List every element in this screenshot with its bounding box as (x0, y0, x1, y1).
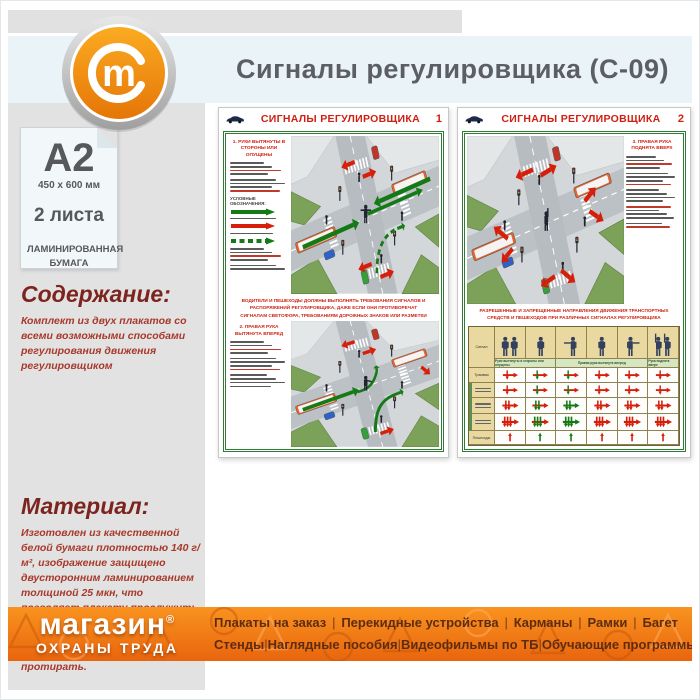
controller-figure (495, 327, 526, 359)
registered-mark: ® (166, 614, 175, 626)
signal-direction-cell (556, 368, 587, 383)
micro-text (626, 156, 678, 228)
signal-group-label: Руки вытянуты в стороны или опущены (495, 359, 556, 368)
signal-direction-cell (495, 414, 526, 431)
poster2-number: 2 (678, 113, 684, 125)
intersection-illustration-2 (291, 321, 439, 447)
footer-menu-item[interactable]: Обучающие программы (542, 637, 692, 652)
menu-separator: | (633, 615, 636, 630)
intersection-illustration-1 (291, 136, 439, 294)
footer-menu-item[interactable]: Наглядные пособия (268, 637, 398, 652)
footer-menu-item[interactable]: Рамки (588, 615, 628, 630)
signal-direction-cell (618, 398, 649, 414)
poster2-text-column: 3. ПРАВАЯ РУКА ПОДНЯТА ВВЕРХ (624, 136, 681, 304)
signal-direction-cell (495, 383, 526, 398)
controller-figure (587, 327, 618, 359)
signal-direction-cell (648, 414, 679, 431)
content-block: Содержание: Комплект из двух плакатов со… (21, 281, 201, 374)
footer-menu: Плакаты на заказ|Перекидные устройства|К… (214, 615, 678, 652)
controller-figure (556, 327, 587, 359)
page-title: Сигналы регулировщика (С-09) (236, 36, 669, 103)
signal-direction-cell (618, 431, 649, 445)
signal-direction-cell (618, 414, 649, 431)
menu-separator: | (504, 615, 507, 630)
footer-menu-row2: Стенды|Наглядные пособия|Видеофильмы по … (214, 637, 678, 652)
signal-direction-cell (526, 368, 557, 383)
signal-direction-cell (495, 368, 526, 383)
signal-direction-cell (495, 431, 526, 445)
intersection-illustration-3 (467, 136, 624, 304)
content-text: Комплект из двух плакатов со всеми возмо… (21, 314, 201, 374)
footer-brand-logo[interactable]: магазин® ОХРАНЫ ТРУДА (36, 610, 179, 655)
poster1-text-column: 1. РУКИ ВЫТЯНУТЫ В СТОРОНЫ ИЛИ ОПУЩЕНЫ У… (228, 136, 291, 294)
brand-subtitle: ОХРАНЫ ТРУДА (36, 641, 179, 655)
poster1-warning-text: ВОДИТЕЛИ И ПЕШЕХОДЫ ДОЛЖНЫ ВЫПОЛНЯТЬ ТРЕ… (228, 294, 439, 322)
legend-heading: УСЛОВНЫЕ ОБОЗНАЧЕНИЯ: (230, 196, 288, 206)
sheets-label: 2 листа (21, 205, 117, 227)
signal-direction-cell (618, 383, 649, 398)
table-row-label (469, 383, 495, 398)
poster-thumbnail-1[interactable]: СИГНАЛЫ РЕГУЛИРОВЩИКА 1 1. РУКИ ВЫТЯНУТЫ… (218, 107, 449, 458)
signal-direction-cell (587, 414, 618, 431)
controller-figure (648, 327, 679, 359)
section2-heading: 2. ПРАВАЯ РУКА ВЫТЯНУТА ВПЕРЕД (230, 325, 288, 338)
table-row-label: Трамваи (469, 368, 495, 383)
micro-text (230, 248, 288, 270)
footer-bar: магазин® ОХРАНЫ ТРУДА Плакаты на заказ|П… (8, 607, 692, 661)
footer-menu-item[interactable]: Перекидные устройства (341, 615, 498, 630)
poster2-frame: 3. ПРАВАЯ РУКА ПОДНЯТА ВВЕРХ РАЗРЕШЕННЫЕ… (462, 131, 686, 452)
controller-figure (618, 327, 649, 359)
signal-direction-cell (587, 383, 618, 398)
poster1-text-column2: 2. ПРАВАЯ РУКА ВЫТЯНУТА ВПЕРЕД (228, 321, 291, 447)
table-corner-label: Сигнал (469, 327, 495, 368)
table-row-label (469, 398, 495, 414)
material-heading: Материал: (21, 493, 201, 520)
signal-direction-cell (556, 398, 587, 414)
sidebar: A2 450 x 600 мм 2 листа ЛАМИНИРОВАННАЯ Б… (8, 103, 205, 690)
legend-dashed-arrow (230, 237, 288, 245)
size-label: 450 x 600 мм (21, 180, 117, 191)
menu-separator: | (332, 615, 335, 630)
poster2-caption: РАЗРЕШЕННЫЕ И ЗАПРЕЩЕННЫЕ НАПРАВЛЕНИЯ ДВ… (467, 304, 681, 324)
signal-direction-cell (648, 398, 679, 414)
footer-menu-item[interactable]: Плакаты на заказ (214, 615, 326, 630)
shop-logo-icon: m (58, 12, 180, 134)
footer-menu-item[interactable]: Багет (642, 615, 677, 630)
footer-menu-item[interactable]: Стенды (214, 637, 264, 652)
poster1-frame: 1. РУКИ ВЫТЯНУТЫ В СТОРОНЫ ИЛИ ОПУЩЕНЫ У… (223, 131, 444, 452)
signal-direction-cell (495, 398, 526, 414)
signal-direction-cell (526, 398, 557, 414)
signal-direction-cell (556, 431, 587, 445)
paper-label: ЛАМИНИРОВАННАЯ БУМАГА (21, 243, 117, 272)
brand-name: магазин (39, 608, 166, 641)
signal-direction-cell (526, 431, 557, 445)
signal-direction-cell (648, 431, 679, 445)
poster1-title: СИГНАЛЫ РЕГУЛИРОВЩИКА (245, 113, 436, 125)
car-icon (225, 115, 245, 124)
section3-heading: 3. ПРАВАЯ РУКА ПОДНЯТА ВВЕРХ (626, 140, 678, 153)
signals-table: СигналРуки вытянуты в стороны или опущен… (468, 326, 680, 446)
shop-logo[interactable]: m (58, 12, 180, 134)
signal-direction-cell (556, 414, 587, 431)
micro-text (230, 162, 288, 191)
signal-direction-cell (556, 383, 587, 398)
content-heading: Содержание: (21, 281, 201, 308)
legend-forbidden-arrow (230, 222, 288, 234)
signal-direction-cell (648, 383, 679, 398)
micro-text (230, 341, 288, 387)
table-row-label (469, 414, 495, 431)
signal-direction-cell (587, 431, 618, 445)
signal-direction-cell (648, 368, 679, 383)
signal-direction-cell (587, 368, 618, 383)
signal-direction-cell (526, 383, 557, 398)
poster1-number: 1 (436, 113, 442, 125)
svg-text:m: m (102, 53, 136, 95)
poster2-header: СИГНАЛЫ РЕГУЛИРОВЩИКА 2 (458, 108, 690, 130)
poster2-title: СИГНАЛЫ РЕГУЛИРОВЩИКА (484, 113, 678, 125)
section1-heading: 1. РУКИ ВЫТЯНУТЫ В СТОРОНЫ ИЛИ ОПУЩЕНЫ (230, 140, 288, 159)
legend-allowed-arrow (230, 208, 288, 220)
signal-direction-cell (587, 398, 618, 414)
format-card: A2 450 x 600 мм 2 листа ЛАМИНИРОВАННАЯ Б… (20, 127, 118, 269)
signal-direction-cell (526, 414, 557, 431)
poster-thumbnail-2[interactable]: СИГНАЛЫ РЕГУЛИРОВЩИКА 2 3. ПРАВАЯ РУКА П… (457, 107, 691, 458)
footer-menu-item[interactable]: Видеофильмы по ТБ (401, 637, 538, 652)
table-row-label: Пешеходы (469, 431, 495, 445)
menu-separator: | (578, 615, 581, 630)
signal-group-label: Правая рука вытянута вперед (556, 359, 648, 368)
footer-menu-row1: Плакаты на заказ|Перекидные устройства|К… (214, 615, 678, 630)
signal-group-label: Рука поднята вверх (648, 359, 679, 368)
footer-menu-item[interactable]: Карманы (514, 615, 573, 630)
signal-direction-cell (618, 368, 649, 383)
controller-figure (526, 327, 557, 359)
car-icon (464, 115, 484, 124)
poster1-header: СИГНАЛЫ РЕГУЛИРОВЩИКА 1 (219, 108, 448, 130)
